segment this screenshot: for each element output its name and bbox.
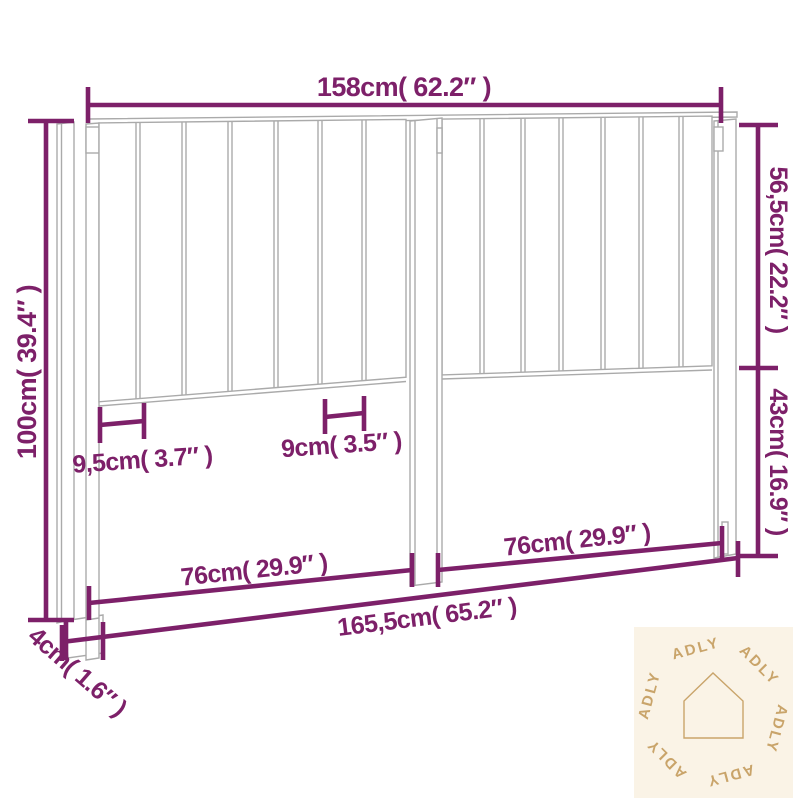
dimension-slat-spacing-right: 9cm( 3.5″ ): [280, 396, 403, 463]
left-back-post: [86, 123, 99, 660]
dimension-bottom-left-width: 76cm( 29.9″ ): [89, 548, 412, 620]
dimension-right-lower-height: 43cm( 16.9″ ): [739, 368, 792, 556]
slats: [99, 116, 712, 402]
top-width-label: 158cm( 62.2″ ): [317, 72, 491, 102]
left-height-label: 100cm( 39.4″ ): [12, 285, 42, 459]
diagram-canvas: 158cm( 62.2″ ) 100cm( 39.4″ ) 56,5cm( 22…: [0, 0, 800, 800]
slat-spacing-right-label: 9cm( 3.5″ ): [280, 427, 403, 463]
right-upper-height-label: 56,5cm( 22.2″ ): [764, 167, 792, 334]
right-lower-height-label: 43cm( 16.9″ ): [764, 388, 792, 536]
headboard-dimension-diagram: 158cm( 62.2″ ) 100cm( 39.4″ ) 56,5cm( 22…: [0, 0, 800, 800]
total-width-label: 165,5cm( 65.2″ ): [336, 592, 519, 642]
headboard-drawing: [57, 112, 737, 660]
left-front-leg: [57, 122, 74, 623]
adly-watermark: ADLY ADLY ADLY ADLY ADLY ADLY: [634, 627, 793, 798]
dimension-right-upper-height: 56,5cm( 22.2″ ): [739, 125, 792, 368]
